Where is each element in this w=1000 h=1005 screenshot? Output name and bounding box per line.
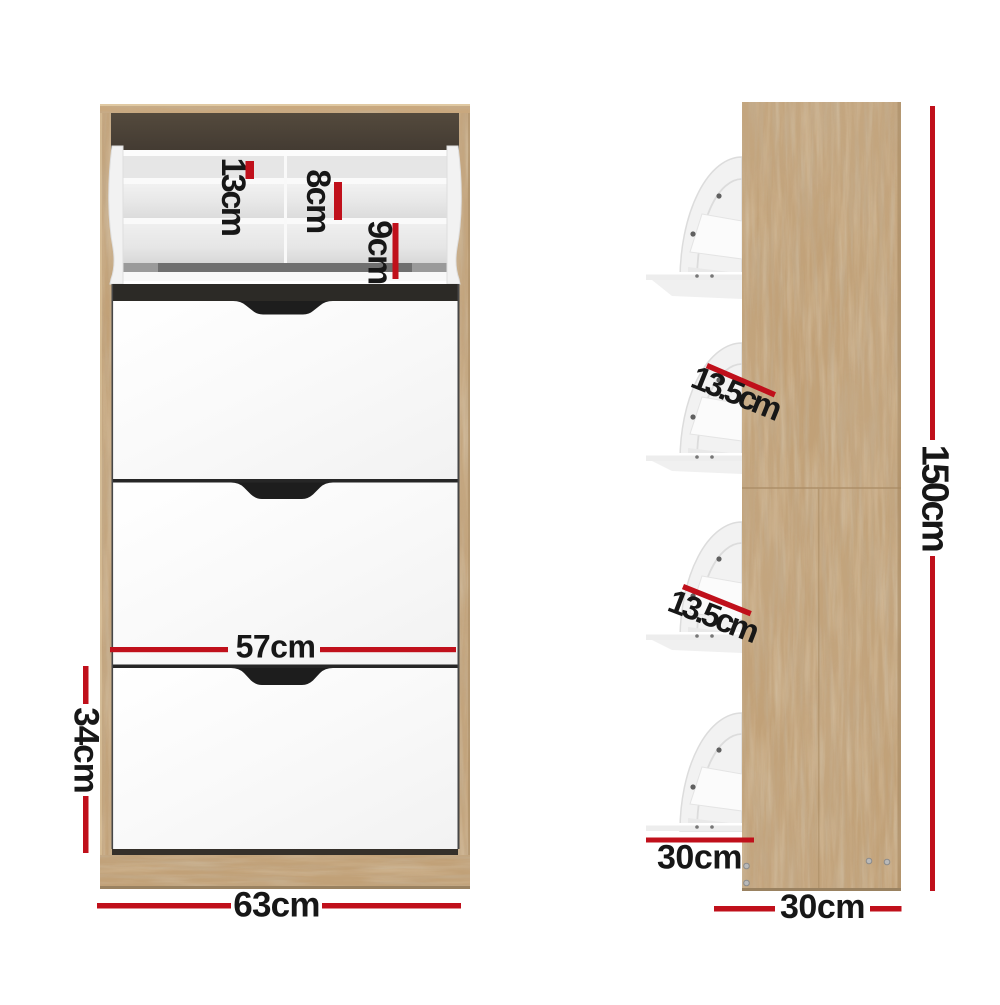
svg-text:63cm: 63cm (233, 886, 320, 925)
svg-text:30cm: 30cm (657, 839, 742, 877)
svg-text:13cm: 13cm (214, 158, 252, 236)
svg-text:30cm: 30cm (780, 888, 865, 926)
svg-text:150cm: 150cm (914, 445, 956, 552)
svg-text:8cm: 8cm (299, 169, 337, 233)
svg-text:34cm: 34cm (67, 707, 106, 793)
svg-text:57cm: 57cm (236, 629, 316, 665)
svg-text:9cm: 9cm (361, 220, 399, 284)
